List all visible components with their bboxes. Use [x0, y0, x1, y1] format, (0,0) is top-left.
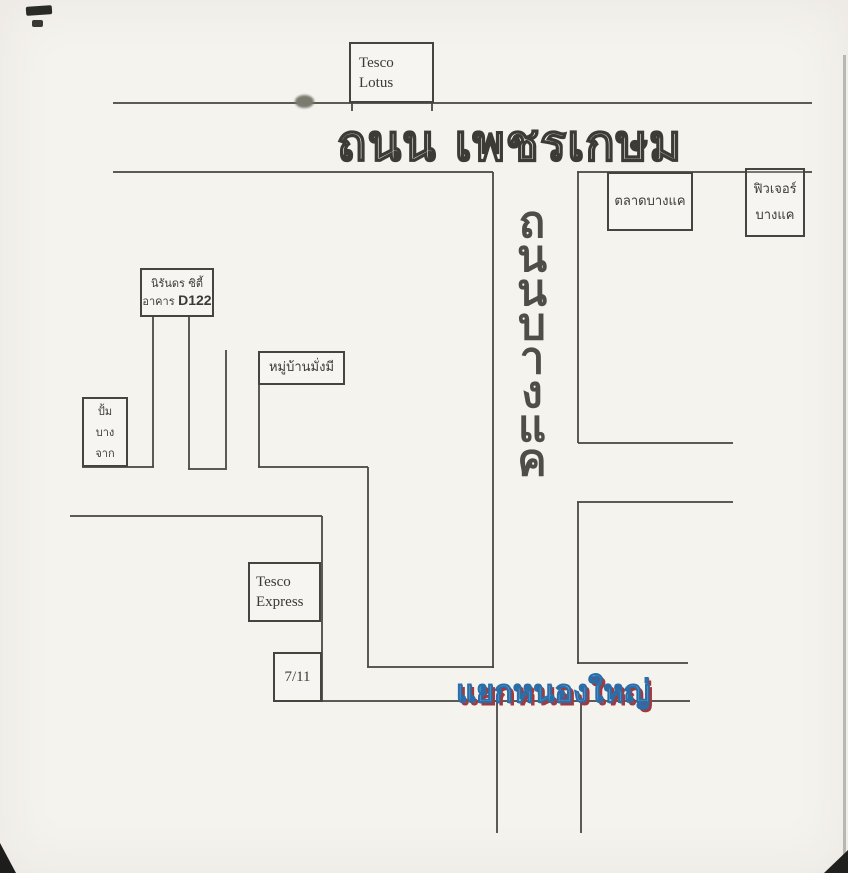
phetkasem-road-name: ถนน เพชรเกษม	[337, 104, 682, 182]
mangmee-soi-east-edge	[258, 385, 260, 467]
seven-eleven-label: 7/11	[284, 669, 310, 686]
scanned-map-page: Tesco Lotus ถนน เพชรเกษม ตลาดบางแค ฟิวเจ…	[0, 0, 848, 873]
bangkhae-road-char: ค	[517, 444, 546, 478]
nirandorn-soi-east-edge	[188, 317, 190, 469]
future-bangkhae-label-line1: ฟิวเจอร์	[753, 177, 796, 203]
nirandorn-building-prefix: อาคาร	[142, 295, 174, 308]
nirandorn-building-line: อาคาร D122	[142, 292, 211, 310]
east-branch-road-south-edge	[577, 501, 733, 503]
scan-right-edge-shadow	[843, 55, 846, 855]
tesco-lotus-label-line1: Tesco	[359, 53, 394, 73]
middle-road-north-edge-3	[258, 466, 368, 468]
middle-road-north-edge-1	[82, 466, 154, 468]
scan-corner-bottom-left	[0, 843, 16, 873]
road-bangkhae-east-edge-mid	[577, 502, 579, 664]
bangchak-label-line2: บาง	[96, 422, 115, 443]
bangkhae-market-box: ตลาดบางแค	[607, 172, 693, 231]
east-branch-road-north-edge	[578, 442, 733, 444]
bangchak-label-line3: จาก	[95, 443, 114, 464]
future-bangkhae-label-line2: บางแค	[756, 203, 795, 229]
tesco-express-label-line1: Tesco	[256, 572, 291, 592]
road-bangkhae-west-edge-lower	[496, 701, 498, 833]
scan-smudge	[295, 95, 314, 108]
seven-eleven-box: 7/11	[273, 652, 322, 702]
nirandorn-soi-west-edge	[152, 317, 154, 467]
scan-mark-top-left	[26, 5, 53, 16]
tesco-express-box: Tesco Express	[248, 562, 321, 622]
bangchak-label-line1: ปั้ม	[98, 401, 112, 422]
scan-mark-top-left-2	[32, 20, 43, 27]
mangmee-village-label: หมู่บ้านมั่งมี	[269, 358, 334, 378]
bangkhae-road-name: ถ น น บ า ง แ ค	[501, 206, 563, 478]
road-bangkhae-east-edge-lower	[580, 701, 582, 833]
road-bangkhae-west-edge	[492, 172, 494, 668]
nongyai-junction-label: แยกหนองใหญ่	[456, 666, 650, 716]
bangkhae-market-label: ตลาดบางแค	[614, 192, 685, 212]
future-bangkhae-box: ฟิวเจอร์ บางแค	[745, 168, 805, 237]
mangmee-soi-west-edge	[225, 350, 227, 468]
nirandorn-city-label: นิรันดร ซิตี้	[151, 275, 203, 292]
tesco-express-label-line2: Express	[256, 592, 304, 612]
middle-road-south-edge	[70, 515, 322, 517]
south-road-east-edge	[367, 467, 369, 667]
mangmee-village-box: หมู่บ้านมั่งมี	[258, 351, 345, 385]
middle-road-north-edge-2	[188, 468, 227, 470]
bottom-road-north-edge-east	[577, 662, 688, 664]
tesco-lotus-label-line2: Lotus	[359, 73, 393, 93]
scan-corner-bottom-right	[824, 850, 848, 873]
road-bangkhae-east-edge-upper	[577, 172, 579, 443]
tesco-lotus-box: Tesco Lotus	[349, 42, 434, 103]
nirandorn-city-box: นิรันดร ซิตี้ อาคาร D122	[140, 268, 214, 317]
nirandorn-building-code: D122	[178, 292, 211, 308]
bangchak-station-box: ปั้ม บาง จาก	[82, 397, 128, 467]
